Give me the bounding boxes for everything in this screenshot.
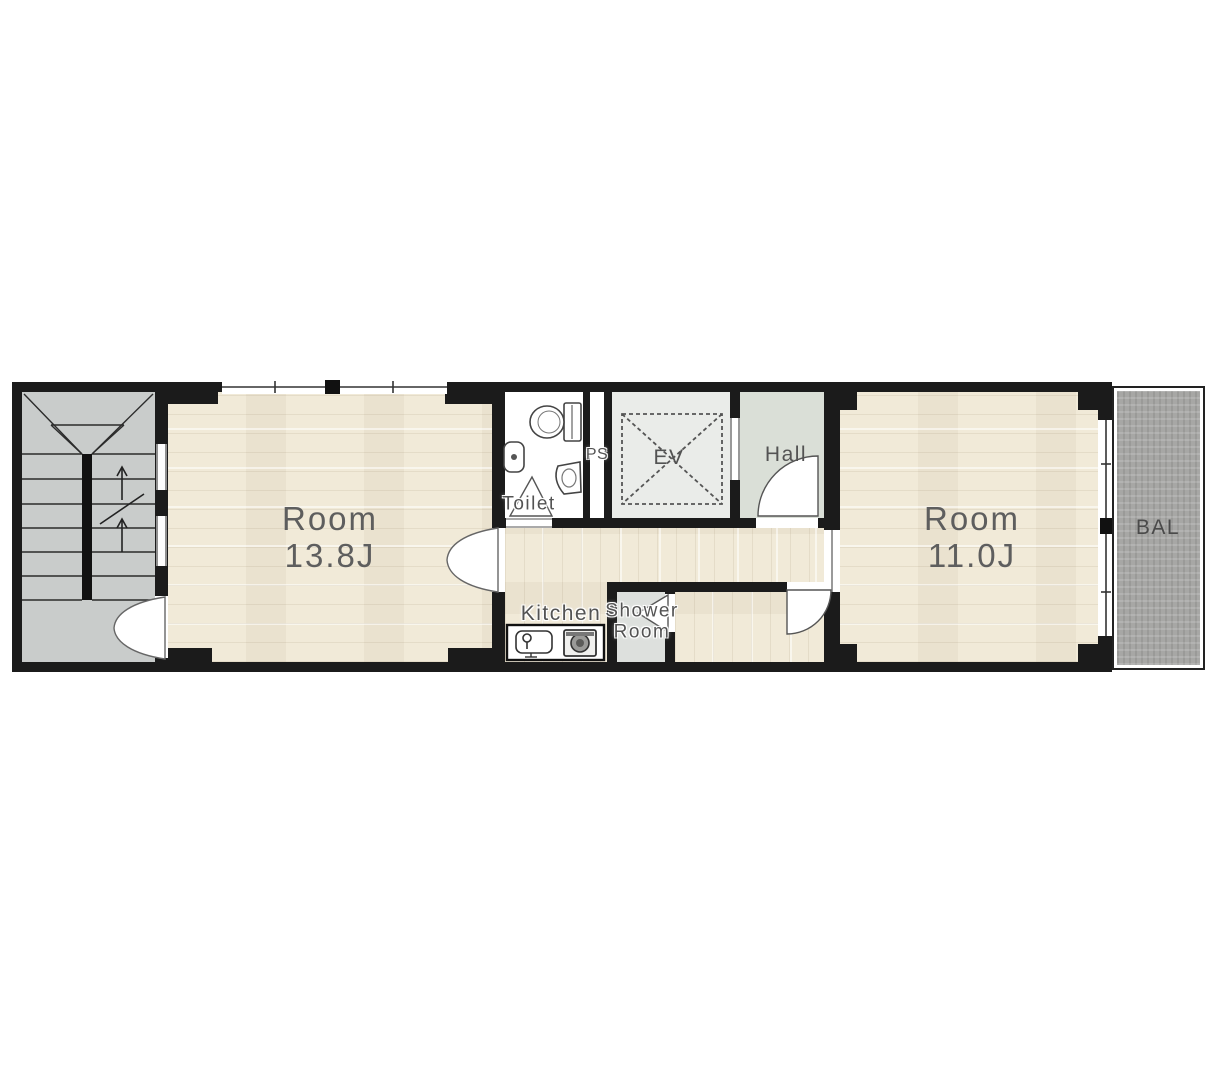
wall-segment: [447, 382, 1112, 392]
balcony-deck: [1117, 391, 1200, 665]
wall-segment: [12, 662, 1112, 672]
door-arc-icon: [106, 594, 168, 662]
wall-corner-block: [1078, 644, 1102, 662]
elevator-door-icon: [730, 418, 740, 480]
kitchen-sink-icon: [516, 631, 552, 657]
door-arc-icon: [440, 524, 502, 596]
wall-segment: [12, 382, 22, 672]
stove-icon: [564, 630, 596, 656]
wall-segment: [675, 582, 787, 592]
kitchen-counter: [506, 624, 606, 662]
balcony: [1112, 386, 1205, 670]
room-11-0j-floor: [840, 392, 1098, 662]
toilet-icon: [530, 403, 581, 441]
wall-corner-block: [168, 392, 218, 404]
window-icon: [222, 380, 447, 394]
sliding-door-icon: [831, 530, 833, 592]
wall-corner-block: [833, 392, 857, 410]
door-opening: [756, 518, 818, 528]
toilet-fixtures: [502, 396, 586, 506]
wall-segment: [604, 392, 612, 518]
wall-segment: [607, 582, 617, 662]
stair-direction-arrow-icon: [100, 467, 144, 552]
sink-icon: [504, 442, 524, 472]
wall-corner-block: [168, 648, 212, 662]
door-arc-icon: [633, 592, 673, 636]
door-arc-icon: [752, 450, 822, 518]
floor-plan-canvas: Room 13.8J Room 11.0J Toilet PS EV Hall …: [0, 0, 1218, 1080]
wall-corner-block: [448, 648, 492, 662]
wall-segment: [12, 382, 222, 392]
elevator-cross-icon: [616, 408, 728, 510]
pipe-space-floor: [590, 392, 604, 518]
wall-corner-block: [445, 392, 492, 404]
corner-basin-icon: [556, 462, 581, 494]
wall-corner-block: [1078, 392, 1102, 410]
window-icon: [156, 516, 167, 566]
window-icon: [1100, 420, 1112, 636]
wall-corner-block: [833, 644, 857, 662]
corridor-upper-floor: [505, 528, 824, 582]
door-arc-icon: [785, 584, 835, 638]
window-icon: [156, 444, 167, 490]
